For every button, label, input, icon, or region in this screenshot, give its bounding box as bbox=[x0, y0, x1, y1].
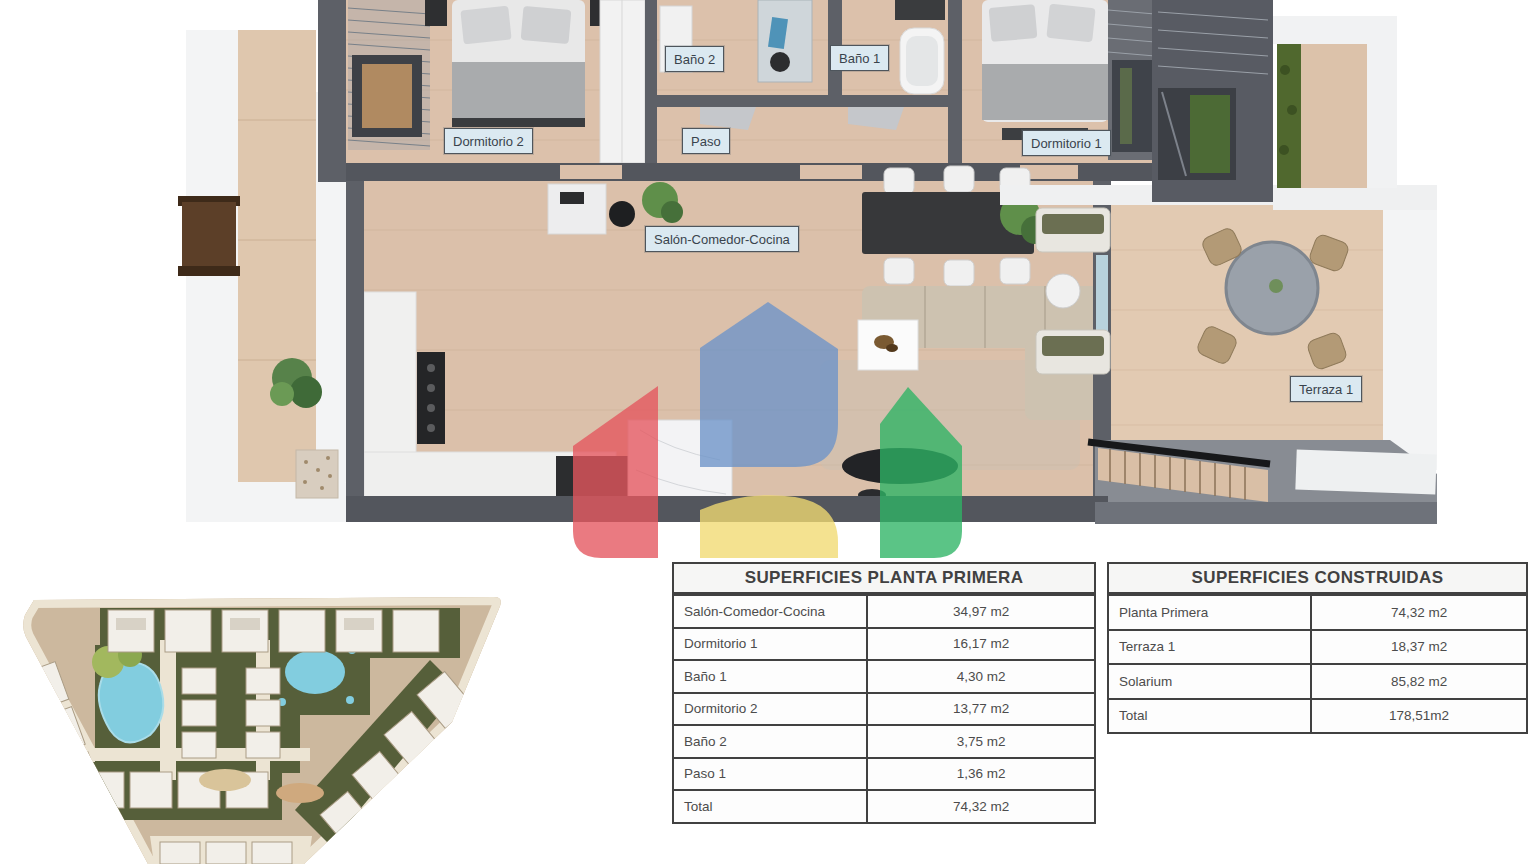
table-row: Salón-Comedor-Cocina 34,97 m2 bbox=[674, 594, 1094, 627]
row-label: Baño 2 bbox=[674, 726, 868, 757]
neighbor-roof-terrace bbox=[1152, 0, 1437, 210]
dormitorio2-window-shade bbox=[348, 0, 430, 150]
bottom-slab bbox=[1095, 502, 1437, 524]
pergola-block bbox=[1152, 0, 1273, 202]
row-value: 18,37 m2 bbox=[1312, 631, 1526, 664]
dormitorio1-bed bbox=[982, 0, 1108, 140]
row-value: 34,97 m2 bbox=[868, 596, 1094, 627]
room-label-dormitorio1: Dormitorio 1 bbox=[1022, 130, 1111, 156]
dormitorio1-window-shade bbox=[1108, 0, 1155, 160]
table-row: Total 74,32 m2 bbox=[674, 789, 1094, 822]
room-label-terraza1: Terraza 1 bbox=[1290, 376, 1362, 402]
table-row: Planta Primera 74,32 m2 bbox=[1109, 594, 1526, 629]
gravel-bed bbox=[296, 450, 338, 498]
row-label: Dormitorio 1 bbox=[674, 629, 868, 660]
table-row: Dormitorio 2 13,77 m2 bbox=[674, 692, 1094, 725]
middle-wall bbox=[346, 163, 1175, 181]
row-label: Total bbox=[1109, 700, 1312, 733]
table-title: SUPERFICIES CONSTRUIDAS bbox=[1109, 564, 1526, 594]
house-row-protrusion bbox=[150, 836, 312, 864]
row-value: 178,51m2 bbox=[1312, 700, 1526, 733]
table-superficies-construidas: SUPERFICIES CONSTRUIDAS Planta Primera 7… bbox=[1107, 562, 1528, 734]
row-label: Total bbox=[674, 791, 868, 822]
table-superficies-planta-primera: SUPERFICIES PLANTA PRIMERA Salón-Comedor… bbox=[672, 562, 1096, 824]
row-value: 1,36 m2 bbox=[868, 759, 1094, 790]
row-label: Salón-Comedor-Cocina bbox=[674, 596, 868, 627]
table-row: Total 178,51m2 bbox=[1109, 698, 1526, 733]
row-value: 13,77 m2 bbox=[868, 694, 1094, 725]
table-row: Baño 1 4,30 m2 bbox=[674, 659, 1094, 692]
table-row: Paso 1 1,36 m2 bbox=[674, 757, 1094, 790]
row-value: 16,17 m2 bbox=[868, 629, 1094, 660]
terrace-white-right bbox=[1383, 200, 1437, 470]
row-value: 4,30 m2 bbox=[868, 661, 1094, 692]
row-value: 74,32 m2 bbox=[1312, 596, 1526, 629]
table-row: Solarium 85,82 m2 bbox=[1109, 663, 1526, 698]
row-value: 3,75 m2 bbox=[868, 726, 1094, 757]
entry-door bbox=[182, 202, 236, 268]
row-value: 74,32 m2 bbox=[868, 791, 1094, 822]
row-label: Baño 1 bbox=[674, 661, 868, 692]
porch-wood-floor bbox=[238, 30, 316, 482]
table-row: Dormitorio 1 16,17 m2 bbox=[674, 627, 1094, 660]
row-label: Dormitorio 2 bbox=[674, 694, 868, 725]
table-title: SUPERFICIES PLANTA PRIMERA bbox=[674, 564, 1094, 594]
row-value: 85,82 m2 bbox=[1312, 665, 1526, 698]
bano1-fixtures bbox=[895, 0, 945, 94]
logo-yellow-shape bbox=[700, 495, 838, 558]
room-label-salon: Salón-Comedor-Cocina bbox=[645, 226, 799, 252]
row-label: Paso 1 bbox=[674, 759, 868, 790]
dormitorio2-bed bbox=[425, 0, 612, 127]
row-label: Terraza 1 bbox=[1109, 631, 1312, 664]
room-label-dormitorio2: Dormitorio 2 bbox=[444, 128, 533, 154]
pool-right bbox=[285, 650, 345, 694]
left-wall-upper bbox=[318, 0, 346, 182]
hedge-strip bbox=[1277, 44, 1301, 188]
office-chair bbox=[609, 201, 635, 227]
site-plan bbox=[10, 595, 510, 864]
table-row: Terraza 1 18,37 m2 bbox=[1109, 629, 1526, 664]
room-label-bano1: Baño 1 bbox=[830, 45, 889, 71]
row-label: Solarium bbox=[1109, 665, 1312, 698]
wall-art bbox=[858, 320, 918, 370]
room-label-paso: Paso bbox=[682, 128, 730, 154]
row-label: Planta Primera bbox=[1109, 596, 1312, 629]
table-row: Baño 2 3,75 m2 bbox=[674, 724, 1094, 757]
floorplan-page: Baño 2 Baño 1 Dormitorio 2 Paso Dormitor… bbox=[0, 0, 1536, 864]
room-label-bano2: Baño 2 bbox=[665, 46, 724, 72]
left-wall-lower bbox=[346, 181, 364, 500]
